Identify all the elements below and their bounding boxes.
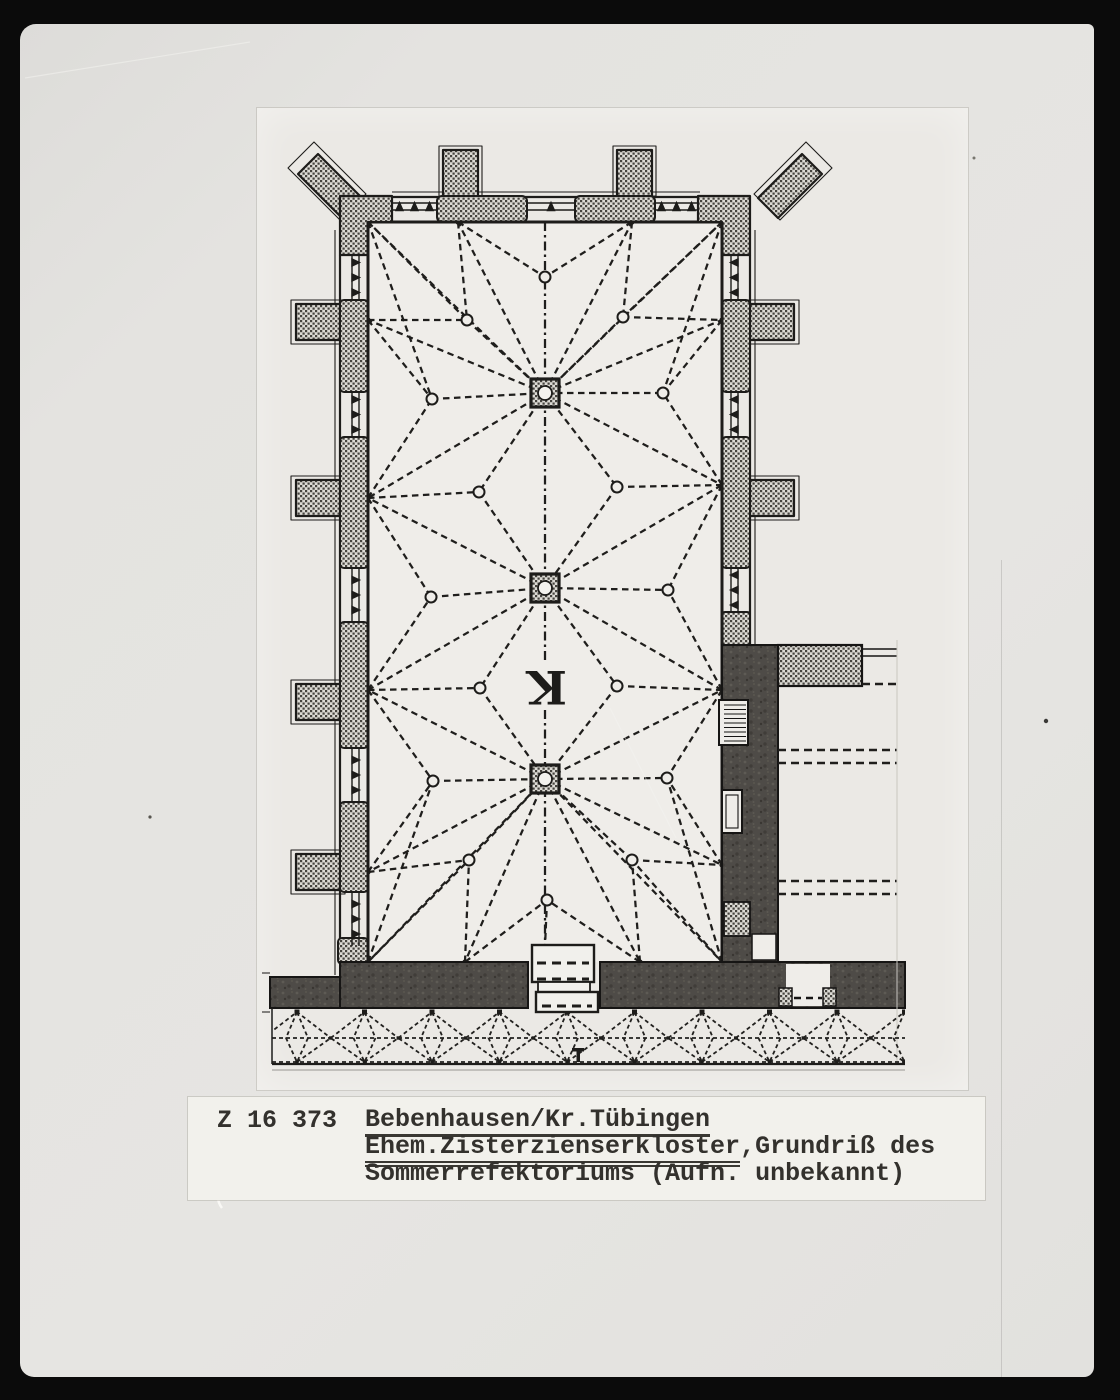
caption-line2-rest: ,Grundriß des [740, 1132, 935, 1161]
scanned-photo-page: K Z 16 373 Bebenhausen/Kr.Tübingen Ehem.… [0, 0, 1120, 1400]
caption-text-block: Bebenhausen/Kr.Tübingen Ehem.Zisterziens… [365, 1106, 935, 1187]
floor-plan-print [257, 108, 968, 1090]
caption-label: Z 16 373 Bebenhausen/Kr.Tübingen Ehem.Zi… [188, 1097, 985, 1200]
catalog-number: Z 16 373 [217, 1106, 337, 1135]
caption-line3: Sommerrefektoriums (Aufn. unbekannt) [365, 1159, 905, 1188]
photo-paper-edge-line [1001, 560, 1002, 1377]
